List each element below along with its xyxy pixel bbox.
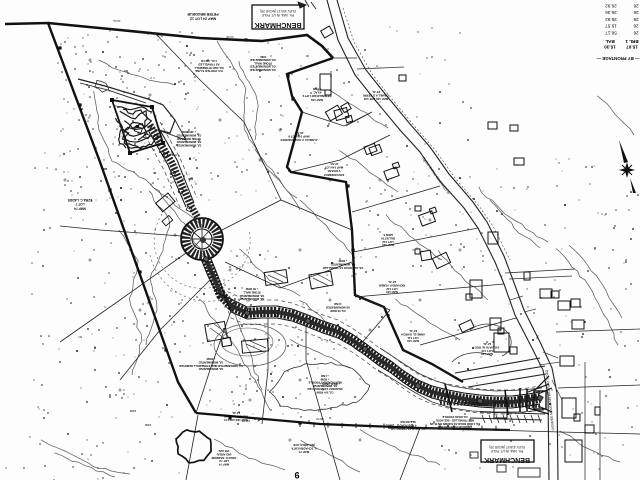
- svg-text:BENCHMARK: BENCHMARK: [254, 21, 302, 30]
- svg-text:— 26: — 26: [633, 24, 640, 29]
- svg-text:26.30: 26.30: [156, 34, 164, 38]
- svg-text:DRM: DRM: [144, 423, 151, 427]
- svg-text:BENCHMARK: BENCHMARK: [484, 456, 530, 463]
- svg-text:+ ROW: + ROW: [338, 259, 347, 263]
- svg-text:C/L 50 ROW: C/L 50 ROW: [330, 309, 346, 313]
- svg-text:42 AC.: 42 AC.: [329, 162, 338, 166]
- svg-text:4 FND: 4 FND: [313, 87, 321, 91]
- svg-text:15.30: 15.30: [604, 45, 616, 50]
- svg-text:P.K. NAIL IN UT. POLE: P.K. NAIL IN UT. POLE: [491, 449, 524, 453]
- svg-text:26.36: 26.36: [605, 10, 617, 15]
- svg-text:SEE NOTES: SEE NOTES: [400, 420, 416, 424]
- svg-text:4 ROD ROAD: 4 ROD ROAD: [400, 423, 417, 427]
- svg-text:19.57: 19.57: [605, 24, 617, 29]
- svg-text:DRM: DRM: [129, 409, 136, 413]
- svg-text:ET AL: ET AL: [409, 329, 417, 333]
- svg-text:AS MONUMENTED: AS MONUMENTED: [326, 305, 350, 309]
- svg-text:— 26: — 26: [633, 10, 640, 15]
- svg-text:ET AL: ET AL: [388, 280, 396, 284]
- svg-text:BRL 1: BRL 1: [625, 39, 639, 44]
- svg-text:26.92: 26.92: [605, 4, 617, 9]
- svg-text:+ ROW: + ROW: [206, 357, 215, 361]
- svg-text:— BY FRONTAGE —: — BY FRONTAGE —: [596, 56, 639, 61]
- svg-text:STONE WALL: STONE WALL: [243, 290, 261, 294]
- svg-text:DR M: DR M: [316, 417, 324, 421]
- svg-text:C/L MONUMENTED: C/L MONUMENTED: [331, 262, 356, 266]
- svg-text:45 AC.: 45 AC.: [294, 131, 303, 135]
- svg-text:C/L MONUMENTED NEW STONEWALL R: C/L MONUMENTED NEW STONEWALL REMOVED: [179, 364, 243, 368]
- svg-text:C/L ROAD PROFILE: C/L ROAD PROFILE: [442, 415, 468, 419]
- svg-text:C/L OLD ROAD AS TRAVELLED: C/L OLD ROAD AS TRAVELLED: [323, 266, 363, 270]
- svg-text:C/L MONUMENTED: C/L MONUMENTED: [177, 144, 202, 148]
- svg-text:150 AVE: 150 AVE: [218, 449, 229, 453]
- svg-text:ERIN A: ERIN A: [383, 233, 392, 237]
- svg-text:24.06: 24.06: [113, 19, 121, 23]
- svg-text:BAL: BAL: [605, 39, 615, 44]
- svg-text:ELEV 453.17 (NGVD 29): ELEV 453.17 (NGVD 29): [260, 9, 295, 13]
- svg-text:4 CL. RB FD: 4 CL. RB FD: [201, 59, 217, 63]
- svg-text:+ WETLANDS +: + WETLANDS +: [319, 382, 340, 386]
- svg-text:PETER BRODEUR: PETER BRODEUR: [187, 12, 219, 16]
- svg-text:C/L MONUMENTED: C/L MONUMENTED: [199, 360, 224, 364]
- svg-text:— 26: — 26: [633, 4, 640, 9]
- svg-text:+ FND: + FND: [321, 374, 329, 378]
- svg-text:EZRA C. LADDS: EZRA C. LADDS: [68, 198, 93, 202]
- svg-text:ELEV 418.57 (NGVD 29): ELEV 418.57 (NGVD 29): [489, 445, 524, 449]
- svg-text:56.17: 56.17: [605, 30, 617, 35]
- svg-text:15.97: 15.97: [626, 45, 638, 50]
- svg-text:C/L MONUMENTED: C/L MONUMENTED: [240, 294, 265, 298]
- svg-text:C/L MONUMENTED: C/L MONUMENTED: [177, 140, 202, 144]
- svg-text:C/L MONUMENTED: C/L MONUMENTED: [177, 133, 202, 137]
- svg-text:+ 400 ROW: + 400 ROW: [181, 130, 196, 134]
- svg-text:9: 9: [294, 470, 299, 480]
- svg-text:MAP 24 LOT 12: MAP 24 LOT 12: [190, 17, 216, 21]
- svg-text:C/L MONUMENTED: C/L MONUMENTED: [240, 297, 265, 301]
- svg-text:24.98: 24.98: [226, 35, 234, 39]
- svg-text:ET AL: ET AL: [483, 342, 491, 346]
- svg-text:— 26: — 26: [633, 30, 640, 35]
- svg-text:ET AL: ET AL: [232, 411, 240, 415]
- svg-text:C/L 4 ROD ROAD AS SHOWN ON PLA: C/L 4 ROD ROAD AS SHOWN ON PLAN: [430, 422, 480, 426]
- svg-text:4 FND: 4 FND: [334, 302, 342, 306]
- svg-text:C/L MONUMENTED: C/L MONUMENTED: [199, 367, 224, 371]
- svg-text:246.80: 246.80: [241, 419, 250, 423]
- svg-text:STONE WALL FND: STONE WALL FND: [177, 137, 201, 141]
- svg-text:ET AL: ET AL: [372, 90, 380, 94]
- svg-text:FND.: FND.: [260, 55, 267, 59]
- svg-text:(NO AREA) AVE: (NO AREA) AVE: [293, 443, 315, 447]
- svg-text:— 26: — 26: [633, 17, 640, 22]
- svg-text:380.10: 380.10: [385, 423, 394, 427]
- svg-text:P.K. NAIL IN UT. POLE: P.K. NAIL IN UT. POLE: [262, 13, 295, 17]
- svg-text:25.92: 25.92: [605, 17, 617, 22]
- svg-text:+ 50 ROW: + 50 ROW: [245, 287, 258, 291]
- svg-text:NOT TRAVELLED - SEE NOTE: NOT TRAVELLED - SEE NOTE: [436, 418, 475, 422]
